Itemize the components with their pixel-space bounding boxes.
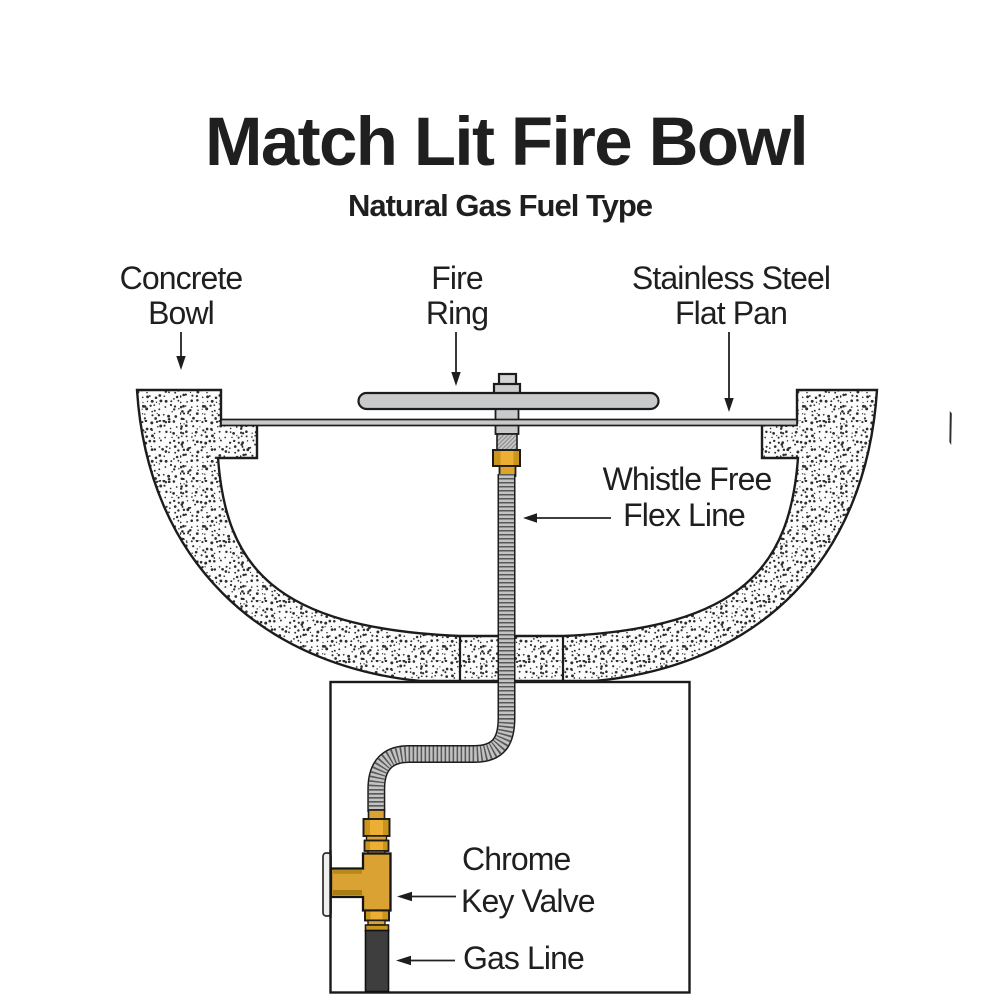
svg-text:Whistle Free: Whistle Free [603, 461, 772, 497]
svg-text:Ring: Ring [426, 295, 488, 331]
svg-text:Natural Gas Fuel Type: Natural Gas Fuel Type [348, 188, 653, 223]
svg-text:Concrete: Concrete [120, 260, 243, 296]
svg-text:Match Lit Fire Bowl: Match Lit Fire Bowl [205, 103, 807, 180]
svg-text:Chrome: Chrome [462, 841, 571, 877]
svg-text:Fire: Fire [431, 260, 483, 296]
svg-text:Key Valve: Key Valve [461, 883, 595, 919]
svg-text:Stainless Steel: Stainless Steel [632, 260, 830, 296]
svg-text:Gas Line: Gas Line [463, 940, 584, 976]
svg-text:Bowl: Bowl [148, 295, 214, 331]
svg-text:Flat Pan: Flat Pan [675, 295, 787, 331]
svg-text:Flex Line: Flex Line [623, 497, 745, 533]
